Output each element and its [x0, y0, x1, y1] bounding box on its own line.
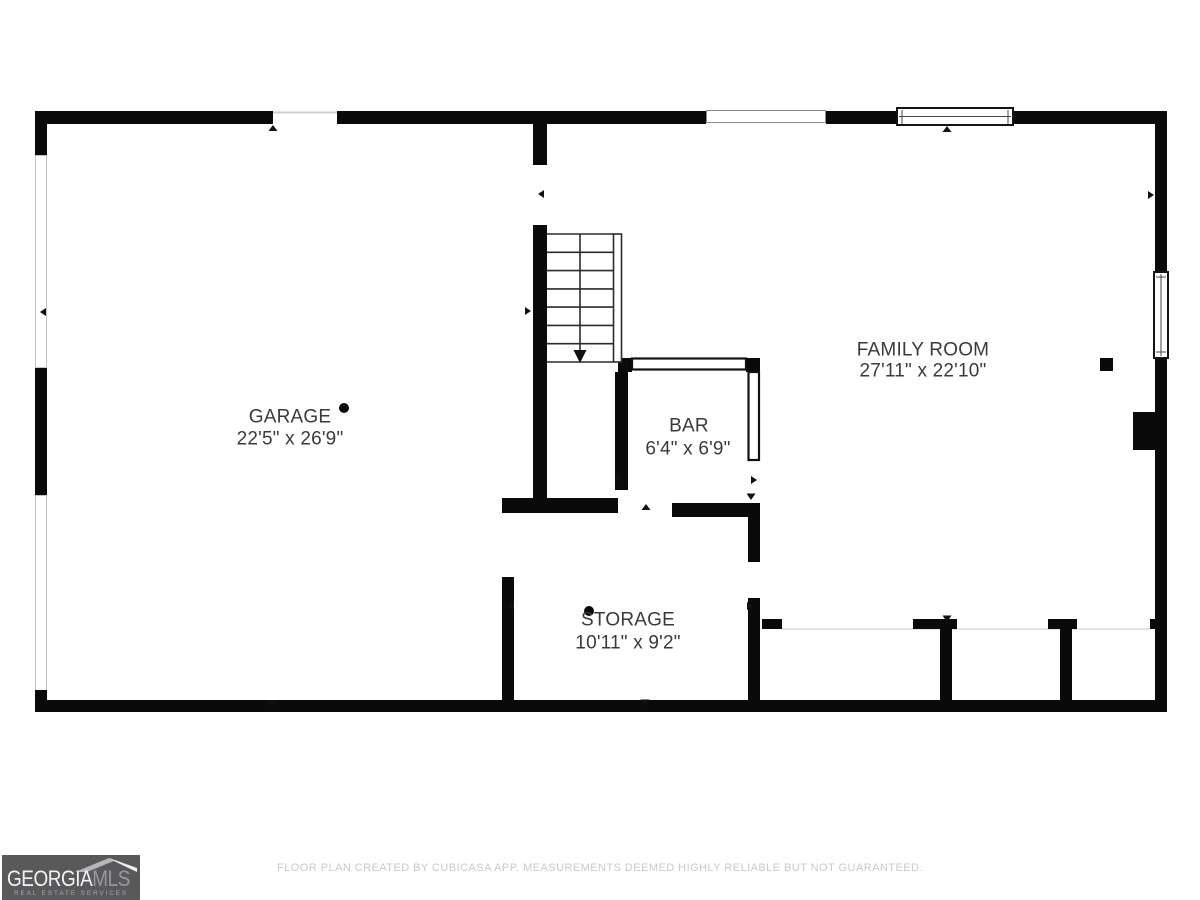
wall-top-middle	[337, 111, 706, 124]
wall-familyroom-bottom-c	[1048, 619, 1077, 629]
bar-counter-top	[632, 359, 746, 370]
room-dims-garage: 22'5" x 26'9"	[237, 430, 344, 449]
room-name-bar: BAR	[669, 417, 709, 436]
marker-right-icon	[1148, 191, 1154, 199]
bar-counter-right	[749, 372, 760, 460]
stair-down-arrow-icon	[574, 350, 587, 363]
marker-up-icon	[269, 125, 278, 131]
room-dims-family-room: 27'11" x 22'10"	[860, 362, 987, 381]
logo-tagline: REAL ESTATE SERVICES	[2, 890, 140, 897]
wall-garage-storage	[502, 498, 618, 513]
wall-bar-storage	[672, 503, 760, 517]
wall-left-a	[35, 111, 47, 155]
marker-up-icon	[943, 126, 952, 132]
logo-text-mls: MLS	[92, 866, 130, 891]
wall-stairs-bar	[615, 372, 628, 490]
wall-left-b	[35, 368, 47, 495]
marker-left-icon	[538, 190, 544, 198]
georgia-mls-logo: GEORGIAMLS REAL ESTATE SERVICES	[2, 855, 140, 900]
wall-top-left	[35, 111, 273, 124]
room-dims-bar: 6'4" x 6'9"	[645, 440, 730, 459]
marker-up-icon	[642, 504, 651, 510]
wall-right-b	[1155, 358, 1167, 712]
marker-right-icon	[525, 307, 531, 315]
bar-post-b	[746, 358, 760, 372]
wall-storage-left	[502, 577, 514, 712]
deck-post-a	[940, 629, 952, 700]
room-name-family-room: FAMILY ROOM	[857, 341, 989, 360]
wall-top-right-b	[1013, 111, 1167, 124]
staircase	[547, 234, 622, 363]
stair-stringer	[614, 234, 622, 362]
room-name-storage: STORAGE	[581, 611, 675, 630]
marker-down-icon	[747, 494, 756, 501]
logo-text-georgia: GEORGIA	[7, 866, 92, 891]
wall-storage-right-a	[748, 503, 760, 562]
wall-bottom	[35, 700, 1167, 712]
marker-right-icon	[751, 476, 757, 484]
floor-plan-drawing	[0, 0, 1200, 900]
window-left-lower	[36, 496, 47, 702]
wall-top-right-a	[826, 111, 897, 124]
wall-storage-right-b	[748, 598, 760, 712]
footer-disclaimer: FLOOR PLAN CREATED BY CUBICASA APP. MEAS…	[0, 862, 1200, 874]
camera-point-dot	[339, 403, 349, 413]
wall-garage-stairs-b	[533, 225, 547, 505]
windows	[897, 108, 1168, 358]
room-name-garage: GARAGE	[249, 408, 332, 427]
wall-familyroom-bottom-d	[1150, 619, 1167, 629]
wall-familyroom-bottom-a	[762, 619, 782, 629]
wall-garage-stairs-a	[533, 123, 547, 165]
top-wall-opening	[707, 111, 826, 123]
opening-lines	[273, 113, 1150, 630]
fireplace-block	[1133, 412, 1155, 450]
wall-familyroom-bottom-b	[913, 619, 957, 629]
deck-post-b	[1060, 629, 1072, 700]
wall-right-a	[1155, 111, 1167, 272]
room-dims-storage: 10'11" x 9'2"	[575, 634, 680, 653]
window-left-upper	[36, 156, 47, 368]
logo-wordmark: GEORGIAMLS	[7, 868, 130, 890]
support-column	[1100, 358, 1113, 371]
